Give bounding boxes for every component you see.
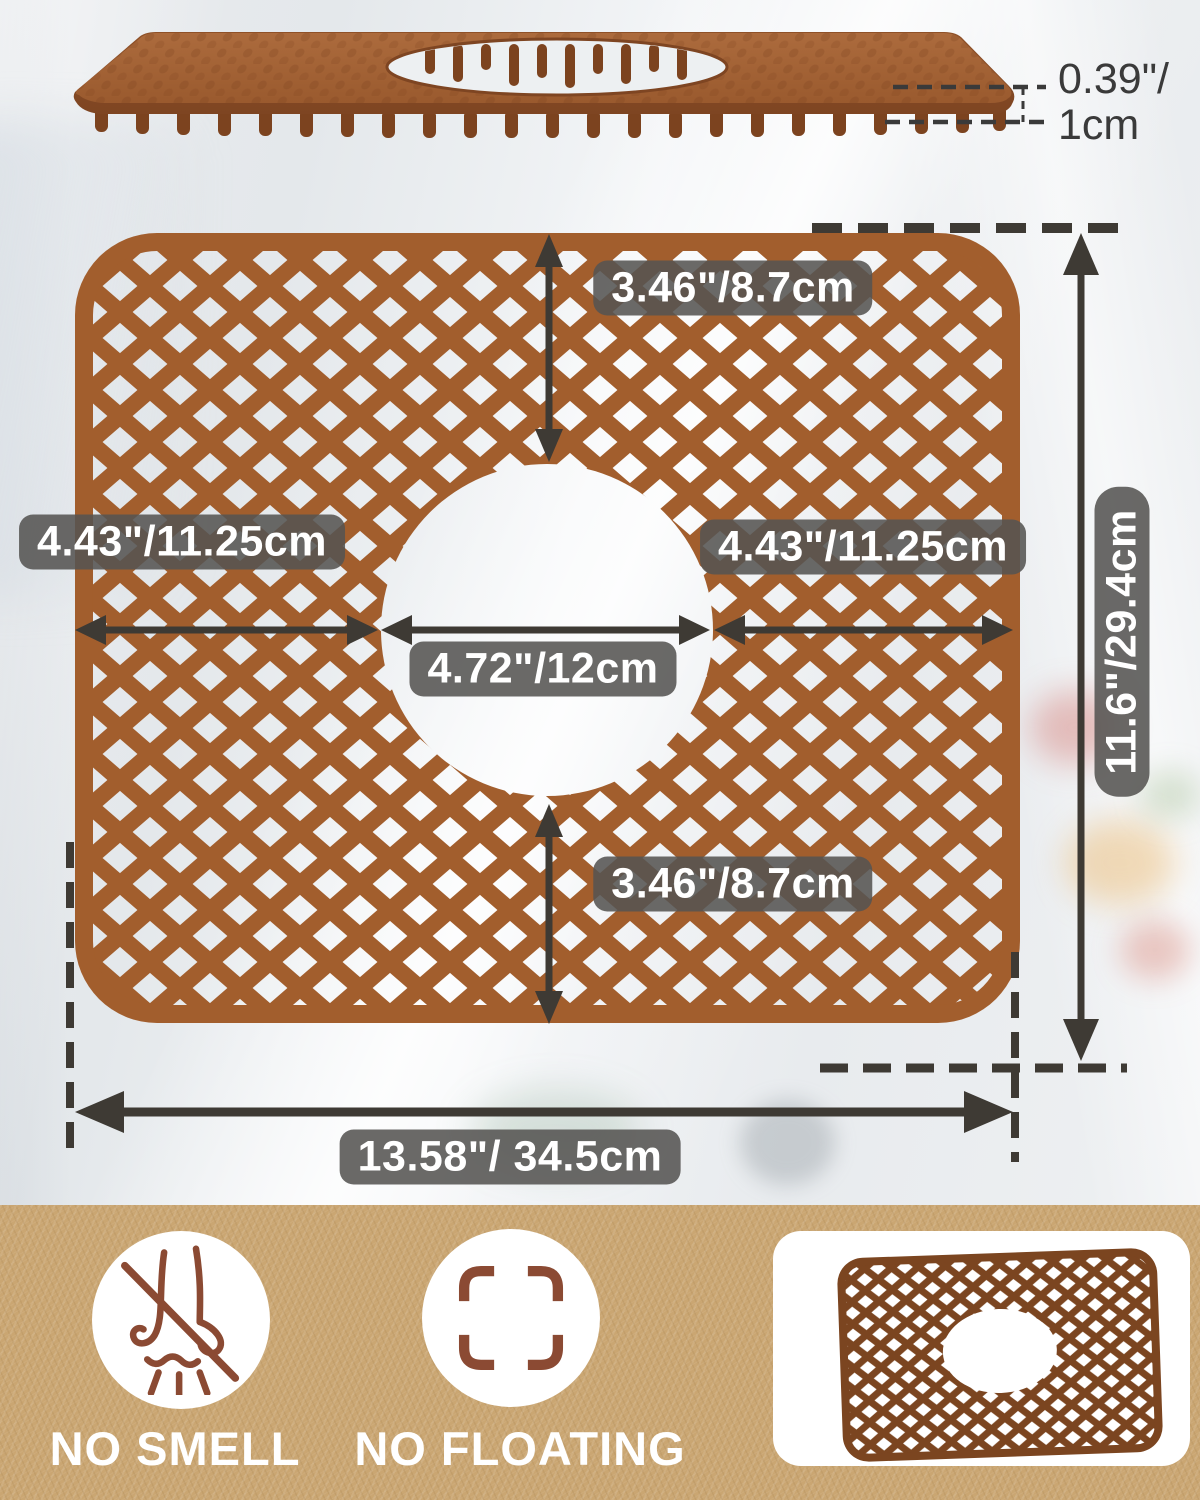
no-smell-icon [92,1231,270,1409]
nose-crossed-icon [106,1245,256,1395]
product-thumbnail-card [773,1231,1190,1466]
dimension-label-left-width: 4.43"/11.25cm [19,515,345,570]
features-strip: NO SMELL NO FLOATING [0,1205,1200,1500]
thickness-dimension-label: 0.39"/ 1cm [1058,56,1169,148]
feature-label-no-smell: NO SMELL [50,1421,301,1477]
feature-label-no-floating: NO FLOATING [354,1421,685,1477]
dimension-label-total-width: 13.58"/ 34.5cm [340,1130,681,1185]
thickness-inches: 0.39"/ [1058,56,1169,102]
dimension-label-bottom-gap: 3.46"/8.7cm [593,857,872,912]
dimension-label-top-gap: 3.46"/8.7cm [593,261,872,316]
product-thumbnail-mini-mat [773,1231,1190,1466]
dimension-label-hole-diameter: 4.72"/12cm [409,642,676,697]
dimension-label-total-height: 11.6"/29.4cm [1095,487,1150,797]
dimension-label-right-width: 4.43"/11.25cm [700,520,1026,575]
no-floating-icon [422,1229,600,1407]
product-infographic-page: 0.39"/ 1cm [0,0,1200,1500]
frame-corners-icon [436,1243,586,1393]
thickness-cm: 1cm [1058,102,1169,148]
